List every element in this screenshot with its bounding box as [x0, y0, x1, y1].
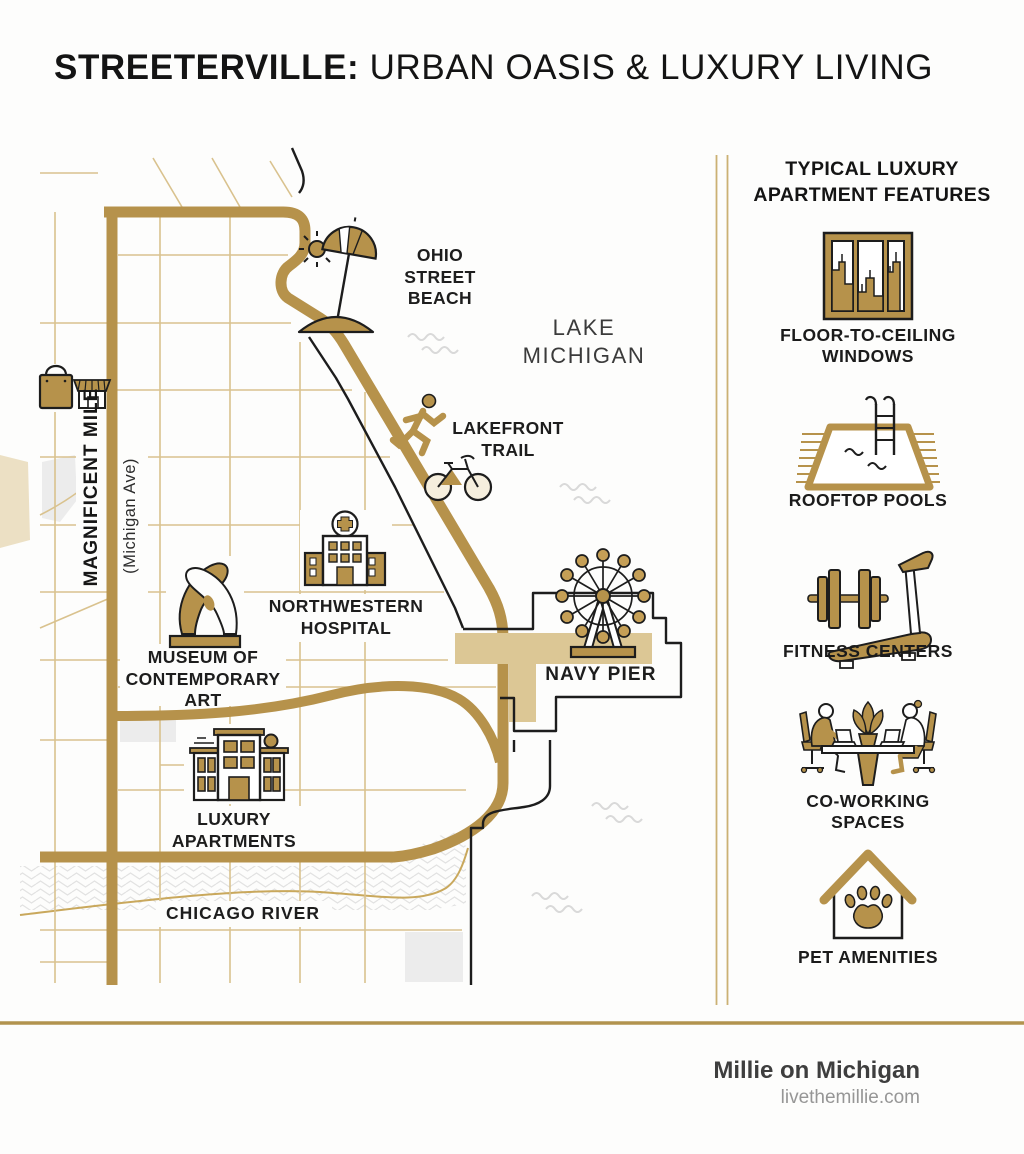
floor-to-ceiling-windows-icon: [824, 233, 912, 319]
label-navy-pier: NAVY PIER: [536, 663, 666, 687]
title-tagline: URBAN OASIS & LUXURY LIVING: [359, 48, 933, 87]
footer-url: livethemillie.com: [713, 1086, 920, 1111]
streeterville-infographic: { "title": { "highlight": "STREETERVILLE…: [0, 0, 1024, 1154]
label-michigan-ave: (Michigan Ave): [121, 421, 143, 611]
label-ohio-street-beach: OHIO STREET BEACH: [379, 245, 501, 310]
label-museum-of-contemporary-art: MUSEUM OF CONTEMPORARY ART: [122, 647, 284, 712]
label-lakefront-trail: LAKEFRONT TRAIL: [448, 418, 568, 461]
sidebar-divider: [717, 155, 728, 1005]
feature-label-coworking: CO-WORKING SPACES: [758, 791, 978, 834]
bicycle-icon: [425, 456, 491, 500]
page-title: STREETERVILLE: URBAN OASIS & LUXURY LIVI…: [54, 48, 1004, 88]
co-working-icon: [800, 701, 936, 786]
label-magnificent-mile: MAGNIFICENT MILE: [81, 382, 105, 592]
label-lake-michigan: LAKE MICHIGAN: [514, 314, 654, 369]
rooftop-pool-icon: [796, 397, 940, 487]
feature-label-windows: FLOOR-TO-CEILING WINDOWS: [758, 325, 978, 368]
feature-label-fitness: FITNESS CENTERS: [758, 641, 978, 662]
footer: Millie on Michigan livethemillie.com: [713, 1057, 920, 1110]
feature-label-pools: ROOFTOP POOLS: [758, 490, 978, 511]
harbor-wall: [471, 740, 550, 985]
label-luxury-apartments: LUXURY APARTMENTS: [164, 809, 304, 852]
pet-amenities-icon: [824, 854, 912, 938]
runner-icon: [393, 395, 443, 454]
sidebar-heading: TYPICAL LUXURY APARTMENT FEATURES: [742, 157, 1002, 208]
title-neighborhood: STREETERVILLE:: [54, 48, 359, 87]
label-chicago-river: CHICAGO RIVER: [158, 903, 328, 925]
label-northwestern-hospital: NORTHWESTERN HOSPITAL: [266, 596, 426, 639]
feature-label-pets: PET AMENITIES: [758, 947, 978, 968]
footer-brand: Millie on Michigan: [713, 1057, 920, 1086]
